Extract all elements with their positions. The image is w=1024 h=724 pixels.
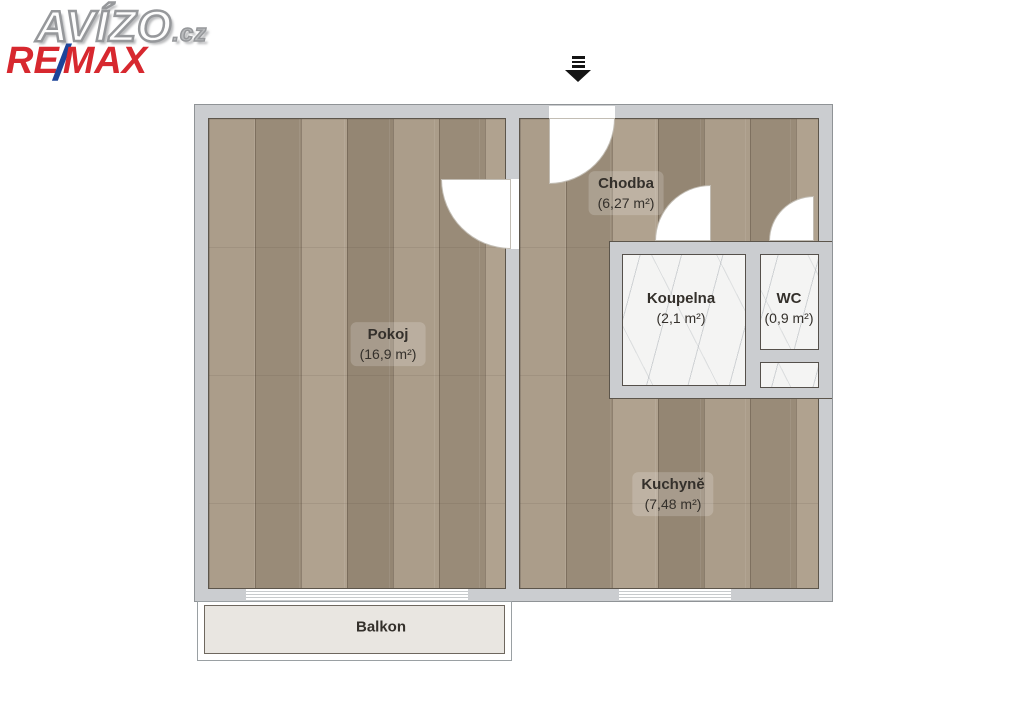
room-label-kuchyne: Kuchyně (7,48 m²)	[632, 472, 713, 516]
brand-logos: AVÍZO.cz RE/MAX	[6, 2, 286, 94]
kitchen-window	[619, 589, 731, 601]
room-name: Balkon	[356, 617, 406, 637]
room-label-balkon: Balkon	[347, 614, 415, 640]
avizo-logo-tld: .cz	[172, 20, 207, 47]
room-area: (6,27 m²)	[598, 194, 655, 212]
wc-shaft-niche	[760, 362, 819, 388]
arrow-shaft-bar	[572, 61, 585, 64]
room-name: Pokoj	[360, 325, 417, 345]
remax-logo: RE/MAX	[6, 40, 147, 83]
arrow-shaft-bar	[572, 56, 585, 59]
entrance-arrow-down-icon	[565, 56, 591, 82]
room-label-pokoj: Pokoj (16,9 m²)	[351, 322, 426, 366]
room-label-wc: WC (0,9 m²)	[756, 286, 823, 330]
entrance-door-opening	[549, 106, 615, 118]
balcony-door-window	[246, 589, 468, 601]
room-label-chodba: Chodba (6,27 m²)	[589, 171, 664, 215]
room-name: WC	[765, 289, 814, 309]
arrow-shaft-bar	[572, 65, 585, 68]
remax-logo-re: RE	[6, 40, 59, 82]
room-area: (2,1 m²)	[647, 309, 715, 327]
floorplan-page: AVÍZO.cz RE/MAX Pokoj (	[0, 0, 1024, 724]
room-area: (7,48 m²)	[641, 495, 704, 513]
room-area: (0,9 m²)	[765, 309, 814, 327]
room-label-koupelna: Koupelna (2,1 m²)	[638, 286, 724, 330]
room-name: Kuchyně	[641, 475, 704, 495]
remax-logo-max: MAX	[63, 40, 147, 82]
room-name: Koupelna	[647, 289, 715, 309]
apartment-outline	[194, 104, 833, 602]
arrow-head	[565, 70, 591, 82]
room-name: Chodba	[598, 174, 655, 194]
room-area: (16,9 m²)	[360, 345, 417, 363]
